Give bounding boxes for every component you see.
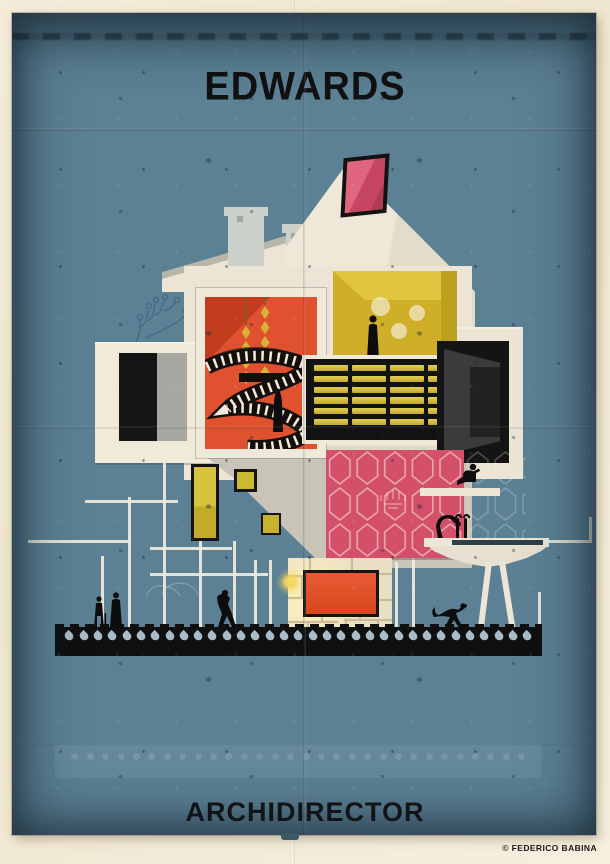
stilt-line (395, 562, 398, 630)
droplet (507, 630, 519, 642)
echo-dot (148, 753, 155, 760)
window-pane (352, 419, 386, 425)
echo-dot (380, 753, 387, 760)
echo-dot (118, 753, 125, 760)
echo-dot (287, 753, 294, 760)
sitting-figure (452, 461, 482, 491)
droplet (106, 630, 118, 642)
window-pane (390, 387, 424, 393)
droplet (364, 630, 376, 642)
droplet (149, 630, 161, 642)
droplet (235, 630, 247, 642)
echo-dot (71, 753, 78, 760)
lamp-diamond (261, 306, 270, 319)
droplet (163, 630, 175, 642)
window-pane (314, 365, 348, 371)
droplet (421, 630, 433, 642)
droplet (335, 630, 347, 642)
hooded-figure (271, 388, 285, 432)
echo-dots (63, 753, 534, 760)
droplet (450, 630, 462, 642)
ceiling-light (409, 305, 425, 321)
orange-screen (303, 570, 379, 617)
railing-line (150, 547, 232, 550)
echo-dot (87, 753, 94, 760)
window-pane (390, 419, 424, 425)
chandelier-sketch (376, 490, 410, 512)
echo-dot (303, 753, 310, 760)
edge-grunge (12, 33, 596, 40)
droplet (307, 630, 319, 642)
echo-dot (333, 753, 340, 760)
window-pane (314, 408, 348, 414)
poster-page: EDWARDS ARCHIDIRECTOR (0, 0, 610, 864)
echo-dot (457, 753, 464, 760)
pool-ladder-hook (455, 514, 462, 518)
window-pane (314, 397, 348, 403)
droplet (278, 630, 290, 642)
pool-ladder-hook (463, 514, 470, 518)
echo-dot (241, 753, 248, 760)
stilt-line (269, 560, 272, 630)
droplet (321, 630, 333, 642)
droplet (435, 630, 447, 642)
droplet (292, 630, 304, 642)
echo-dot (318, 753, 325, 760)
droplet (135, 630, 147, 642)
window-pane (352, 365, 386, 371)
droplet (521, 630, 533, 642)
poster-edge-notch (281, 833, 299, 840)
droplet (407, 630, 419, 642)
window-pane (314, 419, 348, 425)
droplet (464, 630, 476, 642)
window-shade (157, 353, 187, 441)
ground-band (55, 627, 542, 656)
echo-dot (441, 753, 448, 760)
droplet (206, 630, 218, 642)
echo-dot (503, 753, 510, 760)
doorway-depth (470, 367, 500, 437)
droplet (221, 630, 233, 642)
yellow-door (191, 464, 219, 541)
echo-dot (179, 753, 186, 760)
small-yellow-window (234, 469, 257, 492)
horizontal-fold (12, 128, 596, 131)
droplet (178, 630, 190, 642)
window-pane (390, 397, 424, 403)
window-pane (314, 387, 348, 393)
echo-dot (426, 753, 433, 760)
ceiling-light (371, 297, 390, 316)
chimney-cap (224, 207, 268, 216)
window-pane (352, 387, 386, 393)
window-pane (352, 408, 386, 414)
orange-room-interior (205, 297, 317, 449)
pool-water-line (452, 540, 543, 545)
panther-like-walking-figure (430, 599, 470, 631)
echo-dot (133, 753, 140, 760)
echo-dot (210, 753, 217, 760)
droplet (78, 630, 90, 642)
droplet (378, 630, 390, 642)
echo-dot (272, 753, 279, 760)
window-pane (352, 397, 386, 403)
window-pane (352, 376, 386, 382)
window-pane (390, 365, 424, 371)
echo-dot (487, 753, 494, 760)
echo-dot (349, 753, 356, 760)
ceiling-light (391, 323, 407, 339)
echo-dot (518, 753, 525, 760)
stilt-line (128, 497, 131, 630)
echo-dot (195, 753, 202, 760)
poster-title: EDWARDS (12, 65, 596, 110)
droplet (493, 630, 505, 642)
droplet (120, 630, 132, 642)
echo-dot (256, 753, 263, 760)
chimney-large (228, 207, 264, 270)
railing-line (28, 540, 130, 543)
echo-dot (102, 753, 109, 760)
echo-dot (364, 753, 371, 760)
echo-dot (410, 753, 417, 760)
glowing-lamp (276, 568, 304, 596)
echo-dot (164, 753, 171, 760)
droplet (478, 630, 490, 642)
right-wing-doorway (437, 341, 509, 463)
droplet (92, 630, 104, 642)
echo-dot (395, 753, 402, 760)
window-pane (390, 376, 424, 382)
droplet (349, 630, 361, 642)
echo-dot (472, 753, 479, 760)
faint-rock-sketch (142, 562, 202, 602)
window-pane (314, 376, 348, 382)
standing-figure (107, 592, 125, 630)
droplet (392, 630, 404, 642)
small-yellow-window (261, 513, 281, 535)
railing-line (85, 500, 178, 503)
droplet (63, 630, 75, 642)
echo-band (55, 744, 542, 778)
chimney-vent (237, 216, 243, 222)
poster-series-title: ARCHIDIRECTOR (12, 797, 596, 828)
doorway-recess (444, 349, 500, 455)
pool-rim-extension (549, 540, 592, 543)
standing-figure-with-cane (92, 596, 108, 630)
ground-droplets (59, 632, 538, 644)
artwork: EDWARDS ARCHIDIRECTOR (12, 13, 596, 835)
window-pane (390, 408, 424, 414)
droplet (192, 630, 204, 642)
stilt-line (254, 560, 257, 630)
artist-credit: © FEDERICO BABINA (0, 843, 597, 853)
walking-figure (209, 589, 237, 630)
pink-skylight (340, 153, 389, 217)
echo-dot (225, 753, 232, 760)
droplet (264, 630, 276, 642)
spiral-staircase (205, 329, 317, 449)
droplet (249, 630, 261, 642)
left-wing-window (117, 351, 189, 443)
poster-sheet: EDWARDS ARCHIDIRECTOR (12, 13, 596, 835)
